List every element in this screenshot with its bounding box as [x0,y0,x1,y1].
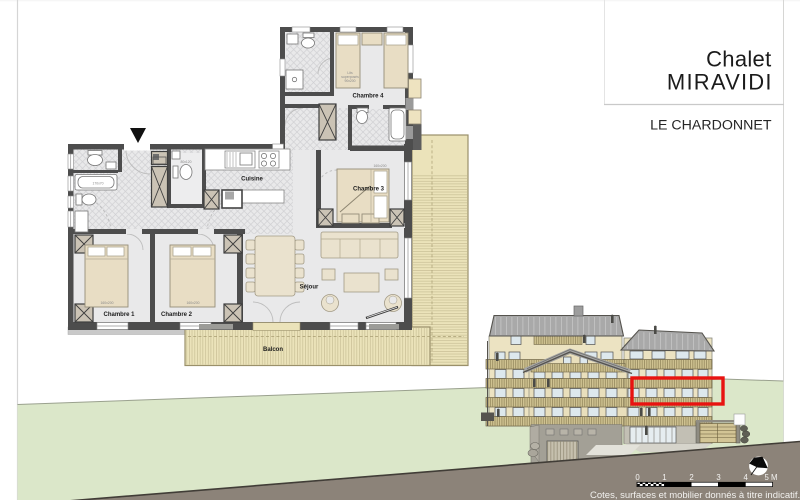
svg-text:160x200: 160x200 [100,301,113,305]
svg-text:Chambre 3: Chambre 3 [353,187,385,193]
svg-text:Balcon: Balcon [263,347,283,353]
svg-text:160x200: 160x200 [373,164,386,168]
svg-text:5 M: 5 M [765,473,778,482]
svg-text:1: 1 [662,473,666,482]
svg-text:0: 0 [635,473,640,482]
svg-text:80x120: 80x120 [180,160,191,164]
svg-text:MIRAVIDI: MIRAVIDI [667,70,773,95]
svg-text:2: 2 [689,473,693,482]
svg-text:90x200: 90x200 [344,79,355,83]
svg-text:LE CHARDONNET: LE CHARDONNET [650,117,772,133]
svg-text:Séjour: Séjour [300,285,319,291]
svg-text:Cuisine: Cuisine [241,177,263,183]
svg-text:3: 3 [716,473,720,482]
svg-text:160x200: 160x200 [186,301,199,305]
svg-text:Cotes, surfaces et mobilier do: Cotes, surfaces et mobilier donnés à tit… [590,490,800,500]
svg-text:Chambre 1: Chambre 1 [103,312,135,318]
svg-text:Chambre 4: Chambre 4 [352,94,384,100]
svg-text:170x70: 170x70 [92,182,103,186]
svg-text:Chalet: Chalet [706,47,771,72]
svg-text:Chambre 2: Chambre 2 [161,312,193,318]
svg-text:4: 4 [744,473,749,482]
